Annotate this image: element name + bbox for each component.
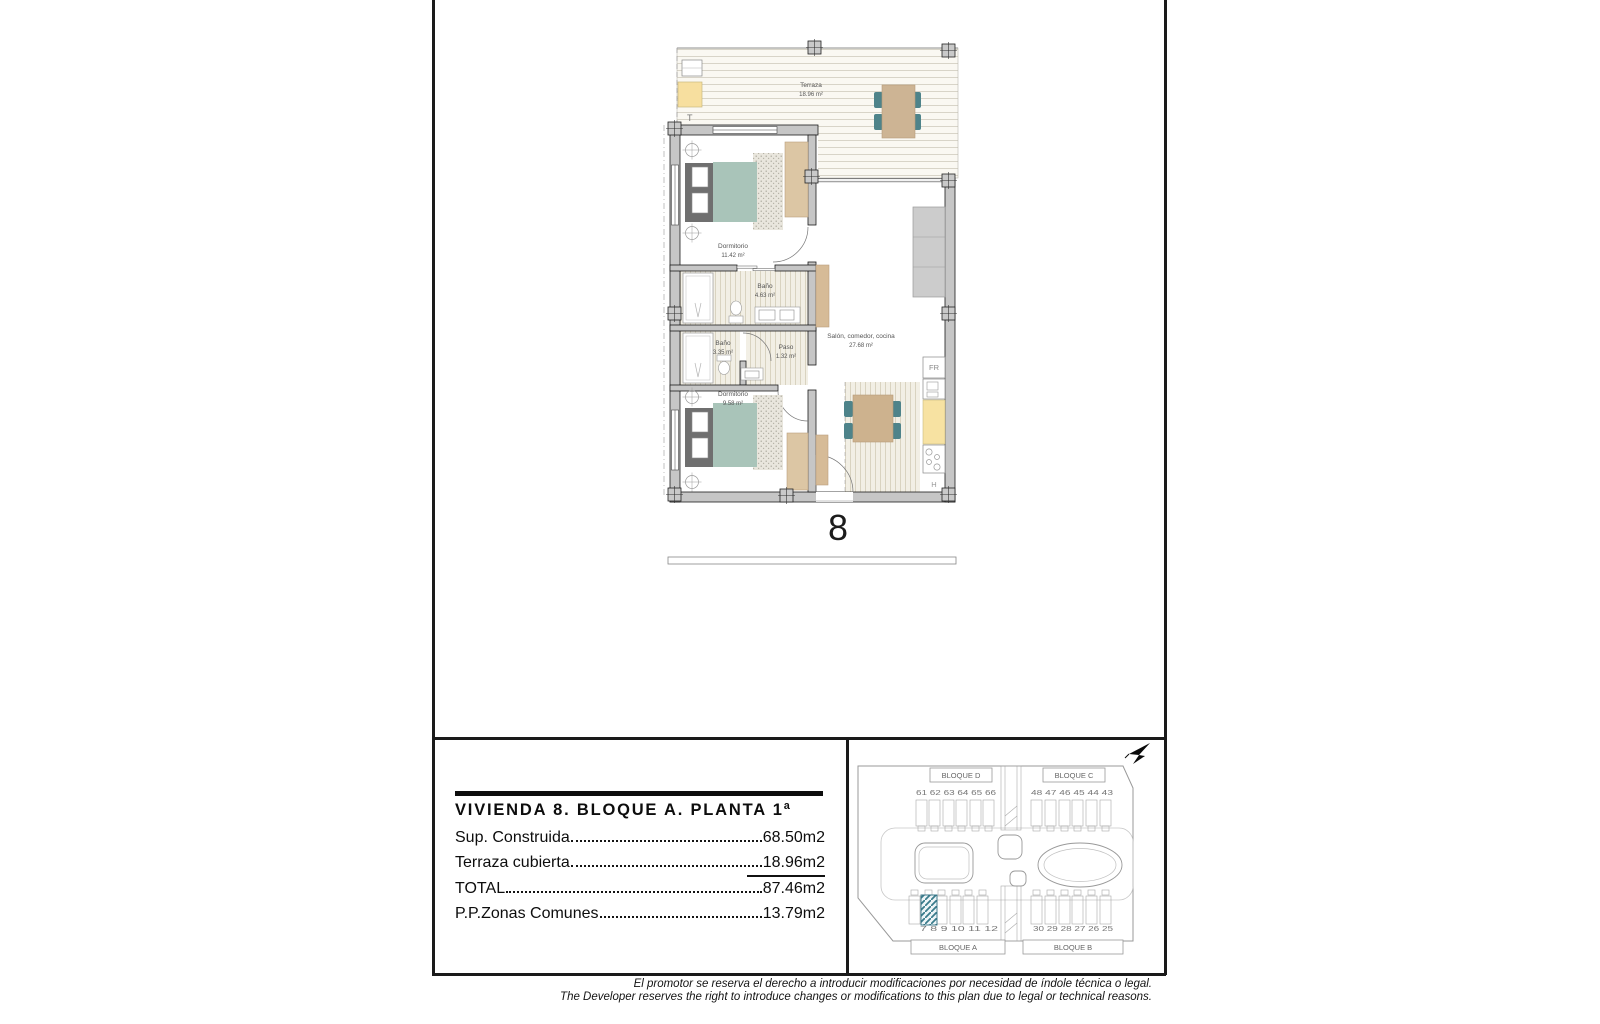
hob-label: H — [931, 480, 936, 489]
area-row-zonas-comunes: P.P.Zonas Comunes 13.79m2 — [455, 902, 825, 927]
area-label: P.P.Zonas Comunes — [455, 902, 599, 927]
dot-leader — [571, 840, 762, 842]
block-label-b: BLOQUE B — [1054, 943, 1092, 952]
terrace-t-label: T — [687, 113, 693, 123]
hall-cabinet — [816, 435, 828, 485]
wardrobe2 — [787, 433, 808, 490]
area-value: 18.96m2 — [747, 851, 825, 878]
wardrobe1 — [785, 142, 808, 217]
room-area-terraza: 18.96 m² — [799, 92, 823, 98]
area-label: Sup. Construida — [455, 826, 570, 851]
terrace-yellow-cabinet — [678, 82, 702, 107]
room-label-bano1: Baño — [757, 283, 773, 290]
area-row-construida: Sup. Construida 68.50m2 — [455, 826, 825, 851]
area-label: Terraza cubierta — [455, 851, 570, 876]
area-value: 13.79m2 — [763, 902, 825, 927]
area-row-total: TOTAL 87.46m2 — [455, 877, 825, 902]
north-arrow-icon — [1125, 743, 1150, 764]
room-label-dormitorio2: Dormitorio — [718, 391, 748, 398]
media-panel — [816, 265, 829, 327]
room-area-bano2: 3.35 m² — [713, 350, 733, 356]
floor-plan: T Terraza 18.96 m² — [640, 35, 970, 575]
bloque-a-numbers: 7 8 9 10 11 12 — [920, 926, 998, 933]
block-label-c: BLOQUE C — [1055, 771, 1094, 780]
unit-title: VIVIENDA 8. BLOQUE A. PLANTA 1ª — [455, 801, 835, 820]
room-area-dormitorio2: 9.58 m² — [723, 401, 743, 407]
room-label-salon: Salón, comedor, cocina — [827, 333, 895, 340]
bloque-d-numbers: 61 62 63 64 65 66 — [916, 790, 996, 797]
area-label: TOTAL — [455, 877, 505, 902]
site-plan: 61 62 63 64 65 66 48 47 46 45 44 43 7 8 … — [847, 738, 1165, 975]
scale-bar — [668, 557, 956, 564]
room-area-salon: 27.68 m² — [849, 343, 873, 349]
dot-leader — [506, 891, 762, 893]
area-row-terraza: Terraza cubierta 18.96m2 — [455, 851, 825, 878]
plan-sheet: T Terraza 18.96 m² — [0, 0, 1600, 1024]
kitchen-counter-yellow — [923, 400, 945, 444]
sofa — [913, 207, 945, 297]
area-table: Sup. Construida 68.50m2 Terraza cubierta… — [455, 826, 825, 926]
room-label-bano2: Baño — [715, 340, 731, 347]
highlighted-unit-8 — [921, 895, 937, 925]
dot-leader — [600, 916, 762, 918]
bloque-c-numbers: 48 47 46 45 44 43 — [1031, 790, 1113, 797]
fridge-label: FR — [929, 363, 940, 372]
block-label-a: BLOQUE A — [939, 943, 977, 952]
bloque-b-numbers: 30 29 28 27 26 25 — [1033, 926, 1113, 933]
room-label-paso: Paso — [779, 344, 794, 351]
block-label-d: BLOQUE D — [942, 771, 981, 780]
room-label-terraza: Terraza — [800, 82, 822, 89]
dot-leader — [571, 865, 762, 867]
room-area-paso: 1.32 m² — [776, 354, 796, 360]
left-border-line — [432, 0, 435, 975]
disclaimer: El promotor se reserva el derecho a intr… — [560, 978, 1152, 1004]
room-label-dormitorio1: Dormitorio — [718, 243, 748, 250]
hob — [923, 445, 945, 473]
area-value: 68.50m2 — [763, 826, 825, 851]
title-rule — [455, 791, 823, 796]
room-area-dormitorio1: 11.42 m² — [721, 253, 744, 259]
area-value: 87.46m2 — [763, 877, 825, 902]
room-area-bano1: 4.63 m² — [755, 293, 775, 299]
unit-number: 8 — [828, 507, 848, 548]
disclaimer-en: The Developer reserves the right to intr… — [560, 991, 1152, 1004]
dining-table — [853, 395, 893, 442]
disclaimer-es: El promotor se reserva el derecho a intr… — [560, 978, 1152, 991]
